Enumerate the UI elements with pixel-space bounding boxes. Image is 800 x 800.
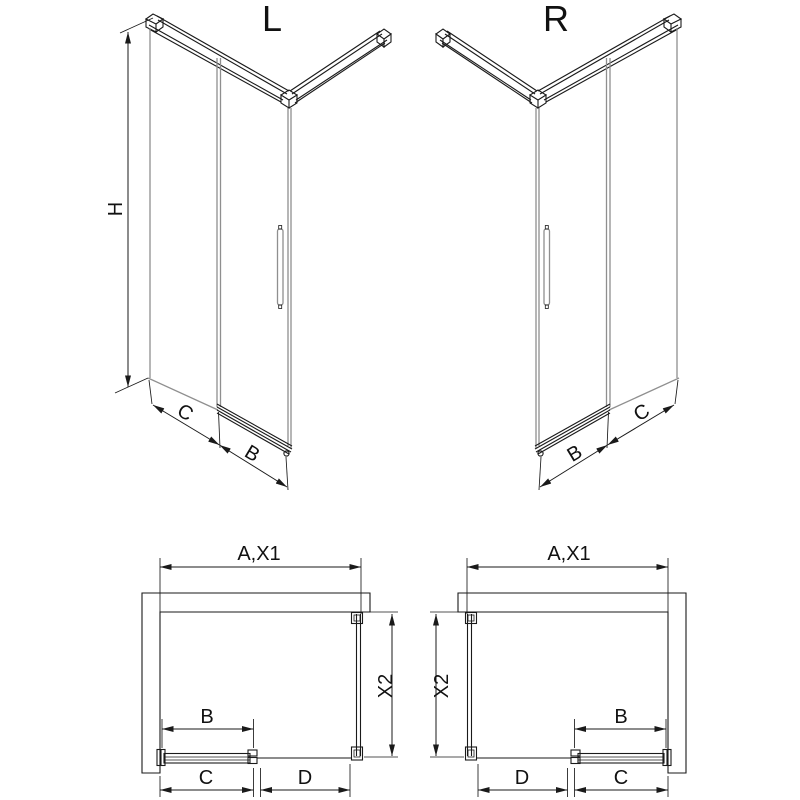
iso-left-b-label: B: [241, 441, 264, 467]
wall-section-left-plan: [142, 593, 370, 773]
plan-left-width-label: A,X1: [237, 543, 280, 565]
plan-right-c-label: C: [614, 767, 628, 789]
plan-left-c-label: C: [199, 767, 213, 789]
plan-left-linework: [157, 558, 398, 797]
plan-left-d-label: D: [298, 767, 312, 789]
drawing-canvas: L H C B R C B A,X1 X2 B C D A,X1 X2 B D …: [0, 0, 800, 800]
variant-label-right: R: [543, 0, 569, 39]
plan-left-depth-label: X2: [375, 674, 397, 698]
plan-right-width-label: A,X1: [547, 543, 590, 565]
iso-right-b-label: B: [564, 441, 587, 467]
plan-view-right: A,X1 X2 B D C: [430, 543, 686, 797]
iso-left-c-label: C: [173, 400, 197, 426]
plan-right-d-label: D: [515, 767, 529, 789]
variant-label-left: L: [262, 0, 282, 39]
wall-section-right-plan: [458, 593, 686, 773]
iso-right-c-label: C: [630, 400, 654, 426]
plan-right-depth-label: X2: [431, 674, 453, 698]
plan-right-b-label: B: [614, 706, 627, 728]
plan-left-b-label: B: [200, 706, 213, 728]
height-dim-label: H: [105, 202, 127, 216]
plan-right-linework: [430, 558, 671, 797]
iso-view-left: L H C B: [105, 0, 391, 490]
plan-view-left: A,X1 X2 B C D: [142, 543, 398, 797]
iso-view-right: R C B: [436, 0, 681, 490]
technical-drawing-page: L H C B R C B A,X1 X2 B C D A,X1 X2 B D …: [0, 0, 800, 800]
